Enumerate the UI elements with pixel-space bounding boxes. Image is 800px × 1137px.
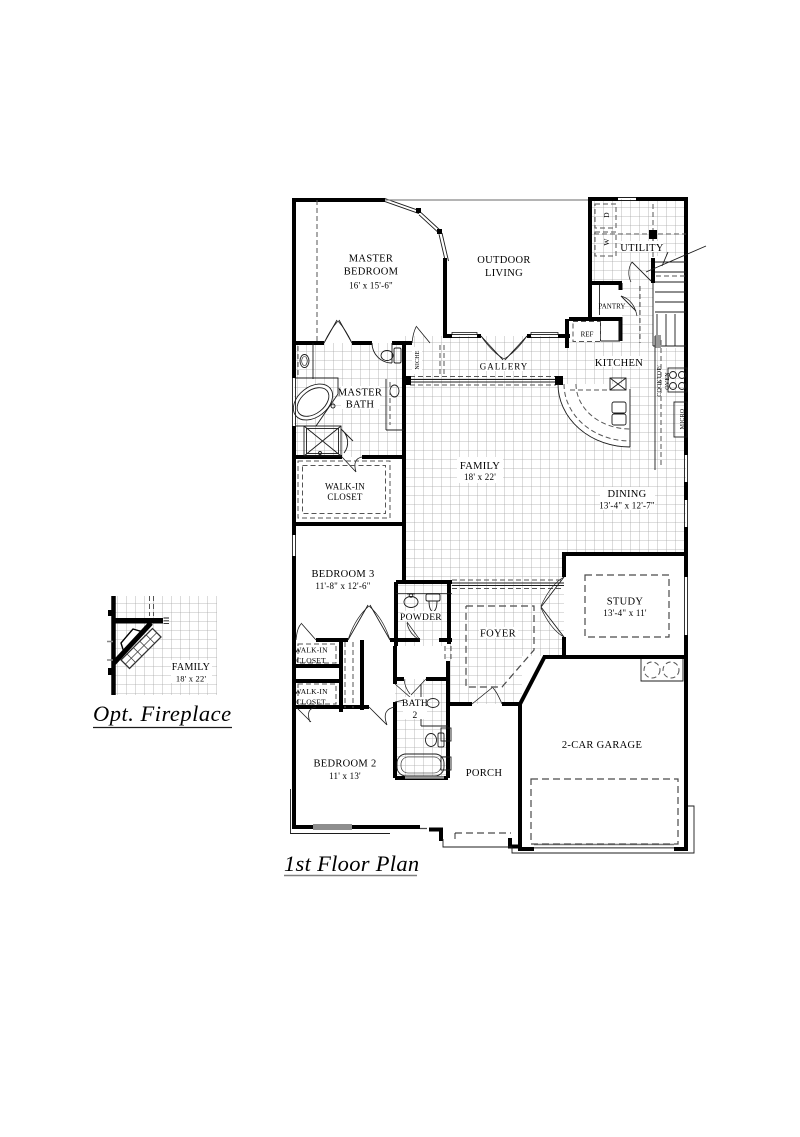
svg-text:MASTER: MASTER: [349, 254, 393, 265]
svg-text:REF: REF: [581, 331, 594, 339]
svg-text:DINING: DINING: [607, 489, 646, 500]
svg-text:CLOSET: CLOSET: [327, 492, 363, 502]
svg-text:11' x 13': 11' x 13': [329, 771, 361, 781]
svg-text:BATH: BATH: [346, 400, 375, 411]
svg-text:WALK-IN: WALK-IN: [325, 482, 365, 492]
svg-text:D: D: [602, 212, 611, 218]
svg-text:Opt. Fireplace: Opt. Fireplace: [93, 701, 232, 726]
svg-text:BATH: BATH: [402, 699, 428, 709]
svg-text:13'-4" x 11': 13'-4" x 11': [603, 608, 647, 618]
svg-text:16' x 15'-6": 16' x 15'-6": [349, 281, 393, 291]
svg-text:OVEN: OVEN: [665, 372, 671, 390]
svg-text:KITCHEN: KITCHEN: [595, 358, 643, 369]
svg-text:GALLERY: GALLERY: [480, 362, 529, 372]
svg-text:18' x 22': 18' x 22': [176, 674, 207, 684]
svg-text:OUTDOOR: OUTDOOR: [477, 255, 530, 266]
svg-text:W: W: [602, 238, 611, 246]
svg-text:WALK-IN: WALK-IN: [294, 646, 328, 655]
svg-text:FOYER: FOYER: [480, 629, 516, 640]
svg-text:FAMILY: FAMILY: [460, 461, 500, 472]
svg-text:11'-8" x 12'-6": 11'-8" x 12'-6": [315, 581, 370, 591]
svg-text:MASTER: MASTER: [338, 388, 382, 399]
svg-text:POWDER: POWDER: [400, 613, 442, 623]
svg-text:PANTRY: PANTRY: [599, 303, 626, 311]
svg-text:STUDY: STUDY: [607, 597, 644, 608]
svg-text:PORCH: PORCH: [466, 768, 503, 779]
svg-text:UTILITY: UTILITY: [620, 243, 664, 254]
svg-text:COOKTOP/: COOKTOP/: [657, 365, 663, 397]
svg-text:LIVING: LIVING: [485, 268, 523, 279]
svg-text:2-CAR GARAGE: 2-CAR GARAGE: [562, 740, 642, 751]
svg-text:BEDROOM 3: BEDROOM 3: [311, 569, 374, 580]
svg-text:MICRO: MICRO: [680, 408, 686, 429]
svg-text:BEDROOM 2: BEDROOM 2: [313, 759, 376, 770]
svg-text:CLOSET: CLOSET: [296, 698, 326, 707]
svg-text:13'-4" x 12'-7": 13'-4" x 12'-7": [599, 501, 655, 511]
svg-text:FAMILY: FAMILY: [172, 662, 210, 673]
svg-text:2: 2: [412, 711, 417, 721]
svg-text:CLOSET: CLOSET: [296, 656, 326, 665]
svg-text:1st Floor Plan: 1st Floor Plan: [284, 851, 419, 876]
svg-text:WALK-IN: WALK-IN: [294, 687, 328, 696]
svg-text:BEDROOM: BEDROOM: [344, 267, 399, 278]
svg-text:18' x 22': 18' x 22': [464, 472, 496, 482]
svg-text:NICHE: NICHE: [415, 350, 421, 369]
